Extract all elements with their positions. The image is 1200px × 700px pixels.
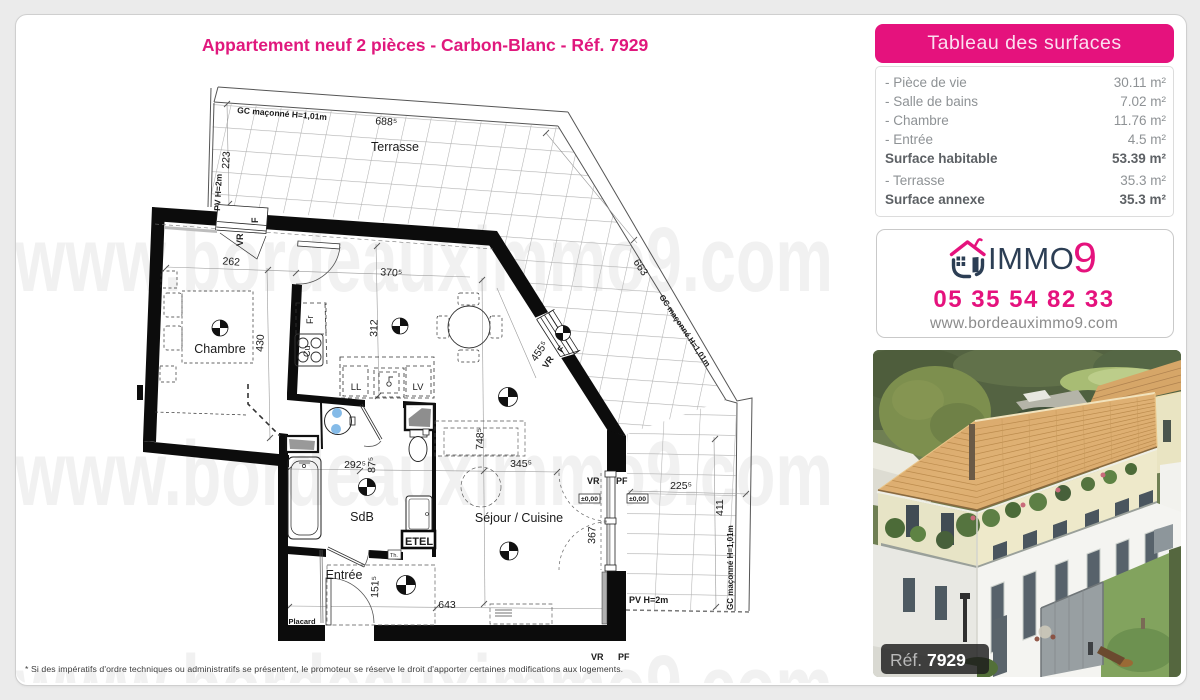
- svg-text:430: 430: [254, 334, 267, 352]
- svg-text:Réf. 7929: Réf. 7929: [890, 650, 966, 670]
- svg-text:Th.: Th.: [390, 553, 398, 559]
- svg-text:Séjour / Cuisine: Séjour / Cuisine: [475, 511, 563, 525]
- svg-text:Entrée: Entrée: [326, 568, 363, 582]
- svg-text:VR: VR: [587, 476, 600, 486]
- svg-text:VR: VR: [591, 652, 604, 662]
- svg-text:292⁵: 292⁵: [344, 459, 366, 471]
- svg-text:688⁵: 688⁵: [375, 115, 398, 128]
- svg-text:±0,00: ±0,00: [581, 496, 598, 503]
- svg-text:GC maçonné H=1,01m: GC maçonné H=1,01m: [726, 525, 735, 610]
- svg-text:87⁵: 87⁵: [366, 457, 379, 473]
- svg-text:ETEL: ETEL: [405, 536, 433, 548]
- svg-text:F: F: [250, 217, 260, 223]
- svg-text:312: 312: [368, 319, 381, 337]
- svg-text:411: 411: [714, 499, 726, 516]
- svg-text:SdB: SdB: [350, 510, 374, 524]
- svg-text:643: 643: [438, 599, 456, 611]
- svg-text:262: 262: [222, 255, 240, 268]
- svg-text:345⁵: 345⁵: [510, 458, 532, 470]
- svg-text:LL: LL: [351, 382, 362, 393]
- svg-text:Placard: Placard: [288, 617, 316, 626]
- svg-text:Fr: Fr: [305, 316, 315, 325]
- svg-text:PV H=2m: PV H=2m: [212, 173, 224, 211]
- svg-text:367: 367: [586, 526, 599, 544]
- svg-text:PV H=2m: PV H=2m: [629, 595, 668, 605]
- svg-text:PF: PF: [618, 652, 630, 662]
- svg-text:Chambre: Chambre: [194, 342, 245, 356]
- svg-text:223: 223: [220, 151, 233, 169]
- svg-text:Cu: Cu: [302, 345, 312, 357]
- svg-text:225⁵: 225⁵: [670, 480, 692, 492]
- svg-text:151⁵: 151⁵: [369, 576, 382, 598]
- svg-text:370⁵: 370⁵: [380, 266, 403, 279]
- svg-text:PF: PF: [616, 476, 628, 486]
- svg-text:748⁵: 748⁵: [474, 428, 487, 450]
- svg-text:VR: VR: [235, 233, 245, 246]
- svg-text:Terrasse: Terrasse: [371, 140, 419, 154]
- svg-text:LV: LV: [413, 382, 425, 393]
- svg-text:±0,00: ±0,00: [629, 496, 646, 503]
